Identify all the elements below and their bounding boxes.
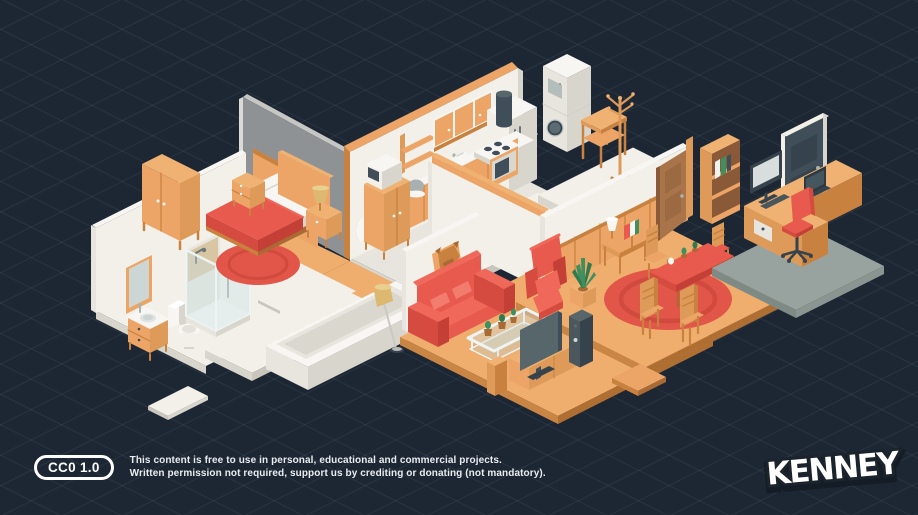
license-badge: CC0 1.0 [34,455,114,480]
brand-logo: KENNEY KENNEY [765,445,902,497]
promo-image: KENNEY KENNEY CC0 1.0 This content is fr… [0,0,918,515]
license-text: This content is free to use in personal,… [130,454,546,480]
speaker [569,310,593,368]
license-footer: CC0 1.0 This content is free to use in p… [34,454,546,480]
furniture-kit-render [91,54,884,424]
isometric-scene: KENNEY KENNEY [0,0,918,515]
loose-tile [148,386,208,420]
license-line-1: This content is free to use in personal,… [130,454,546,467]
license-line-2: Written permission not required, support… [130,467,546,480]
bookshelf [700,134,740,224]
